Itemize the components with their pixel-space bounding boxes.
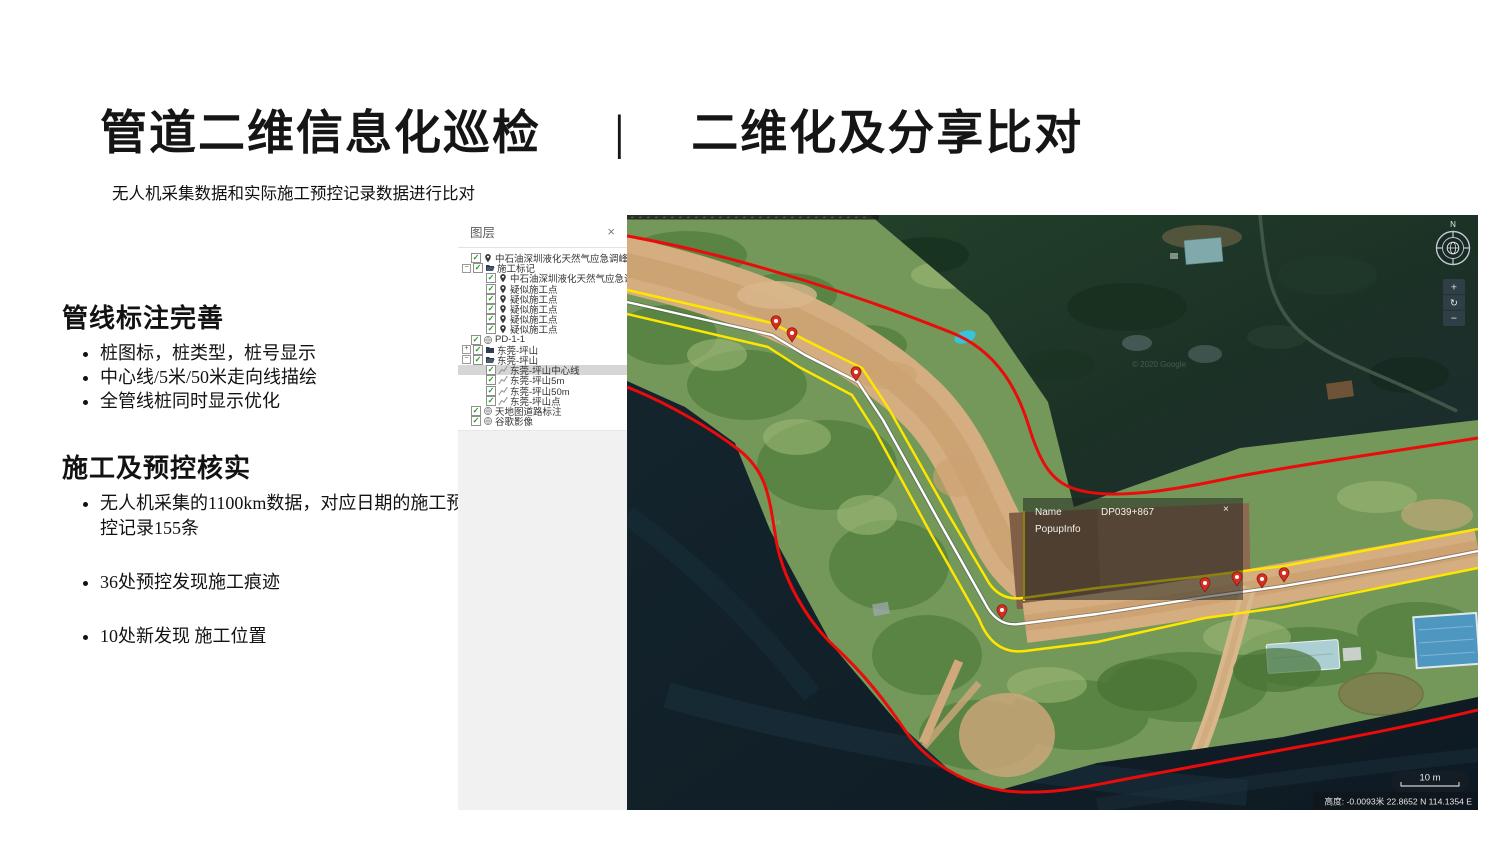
title-left: 管道二维信息化巡检 xyxy=(100,106,541,159)
layer-label: 疑似施工点 xyxy=(510,304,558,314)
map-viewport[interactable]: © 2020 Google xyxy=(627,215,1478,810)
bullet-list: 桩图标，桩类型，桩号显示中心线/5米/50米走向线描绘全管线桩同时显示优化 xyxy=(62,341,482,413)
pin-icon xyxy=(498,273,508,283)
layer-row[interactable]: ✓东莞-坪山点 xyxy=(458,396,627,406)
globe-icon xyxy=(483,335,493,345)
layer-label: 疑似施工点 xyxy=(510,314,558,324)
pond xyxy=(1339,673,1423,715)
checkbox-icon[interactable]: ✓ xyxy=(473,355,483,365)
map-canvas: © 2020 Google xyxy=(627,215,1478,810)
layer-label: 中石油深圳液化天然气应急调峰... xyxy=(510,273,627,283)
checkbox-icon[interactable]: ✓ xyxy=(486,324,496,334)
layer-label: 东莞-坪山50m xyxy=(510,385,570,395)
map-watermark: © 2020 Google xyxy=(1132,360,1186,369)
title-separator: | xyxy=(615,105,626,160)
bullet-item: 全管线桩同时显示优化 xyxy=(100,389,482,413)
checkbox-icon[interactable]: ✓ xyxy=(471,406,481,416)
layer-row[interactable]: +✓东莞-坪山 xyxy=(458,345,627,355)
bullet-item: 10处新发现 施工位置 xyxy=(100,624,466,649)
clipped-top-strip xyxy=(627,215,879,220)
folder-open-icon xyxy=(485,355,495,365)
layer-row[interactable]: ✓疑似施工点 xyxy=(458,324,627,334)
layer-row[interactable]: ✓东莞-坪山中心线 xyxy=(458,365,627,375)
popup-name-value: DP039+867 xyxy=(1101,507,1155,518)
layers-panel: 图层 × ✓中石油深圳液化天然气应急调峰站...−✓施工标记✓中石油深圳液化天然… xyxy=(458,215,627,810)
bullet-item: 无人机采集的1100km数据，对应日期的施工预控记录155条 xyxy=(100,491,466,541)
layer-row[interactable]: −✓东莞-坪山 xyxy=(458,355,627,365)
layer-row[interactable]: ✓疑似施工点 xyxy=(458,294,627,304)
bullet-item: 36处预控发现施工痕迹 xyxy=(100,570,466,595)
section-construction-check: 施工及预控核实 无人机采集的1100km数据，对应日期的施工预控记录155条36… xyxy=(62,448,466,678)
polyline-icon xyxy=(498,375,508,385)
checkbox-icon[interactable]: ✓ xyxy=(471,335,481,345)
pin-icon xyxy=(498,284,508,294)
collapse-toggle-icon[interactable]: − xyxy=(462,355,471,364)
polyline-icon xyxy=(498,365,508,375)
layer-label: 谷歌影像 xyxy=(495,416,533,426)
layer-row[interactable]: ✓疑似施工点 xyxy=(458,314,627,324)
section-pipeline-annotation: 管线标注完善 桩图标，桩类型，桩号显示中心线/5米/50米走向线描绘全管线桩同时… xyxy=(62,298,482,413)
bullet-item: 桩图标，桩类型，桩号显示 xyxy=(100,341,482,365)
layer-label: 疑似施工点 xyxy=(510,294,558,304)
layer-row[interactable]: ✓疑似施工点 xyxy=(458,284,627,294)
checkbox-icon[interactable]: ✓ xyxy=(486,365,496,375)
layer-row[interactable]: ✓东莞-坪山5m xyxy=(458,375,627,385)
layer-label: 施工标记 xyxy=(497,263,535,273)
checkbox-icon[interactable]: ✓ xyxy=(486,386,496,396)
layer-row[interactable]: ✓PD-1-1 xyxy=(458,335,627,345)
layer-label: 中石油深圳液化天然气应急调峰站... xyxy=(495,253,627,263)
scale-bar: 10 m xyxy=(1391,771,1469,792)
layers-panel-footer xyxy=(458,430,627,810)
layer-row[interactable]: ✓天地图道路标注 xyxy=(458,406,627,416)
map-popup: Name DP039+867 PopupInfo × xyxy=(1023,498,1243,600)
layer-label: 疑似施工点 xyxy=(510,324,558,334)
layer-label: 疑似施工点 xyxy=(510,284,558,294)
layer-tree: ✓中石油深圳液化天然气应急调峰站...−✓施工标记✓中石油深圳液化天然气应急调峰… xyxy=(458,248,627,430)
checkbox-icon[interactable]: ✓ xyxy=(486,284,496,294)
layer-label: 东莞-坪山 xyxy=(497,345,538,355)
folder-open-icon xyxy=(485,263,495,273)
layer-label: 东莞-坪山 xyxy=(497,355,538,365)
close-icon[interactable]: × xyxy=(607,224,615,239)
folder-icon xyxy=(485,345,495,355)
bullet-list: 无人机采集的1100km数据，对应日期的施工预控记录155条36处预控发现施工痕… xyxy=(62,491,466,649)
building-roof xyxy=(1184,237,1223,264)
checkbox-icon[interactable]: ✓ xyxy=(486,375,496,385)
layer-label: 东莞-坪山点 xyxy=(510,396,561,406)
slide-subtitle: 无人机采集数据和实际施工预控记录数据进行比对 xyxy=(112,180,475,204)
pin-icon xyxy=(498,314,508,324)
popup-close-icon[interactable]: × xyxy=(1223,504,1229,515)
layer-label: 天地图道路标注 xyxy=(495,406,562,416)
scale-bar-label: 10 m xyxy=(1419,773,1440,784)
layer-row[interactable]: ✓中石油深圳液化天然气应急调峰站... xyxy=(458,253,627,263)
compass-north-label: N xyxy=(1450,220,1456,229)
zoom-in-button[interactable]: + xyxy=(1451,282,1457,294)
checkbox-icon[interactable]: ✓ xyxy=(486,304,496,314)
checkbox-icon[interactable]: ✓ xyxy=(473,263,483,273)
section-heading: 管线标注完善 xyxy=(62,298,482,335)
reset-view-button[interactable]: ↻ xyxy=(1450,298,1458,309)
pin-icon xyxy=(498,324,508,334)
coordinates-readout: 高度: -0.0093米 22.8652 N 114.1354 E xyxy=(1325,796,1473,807)
layer-row[interactable]: ✓东莞-坪山50m xyxy=(458,385,627,395)
layers-panel-title: 图层 xyxy=(470,222,495,241)
layer-label: 东莞-坪山中心线 xyxy=(510,365,580,375)
layer-label: 东莞-坪山5m xyxy=(510,375,564,385)
pin-icon xyxy=(498,304,508,314)
layer-label: PD-1-1 xyxy=(495,335,525,345)
layers-panel-header: 图层 × xyxy=(458,215,627,248)
swimming-pool xyxy=(1413,613,1478,668)
section-heading: 施工及预控核实 xyxy=(62,448,466,485)
checkbox-icon[interactable]: ✓ xyxy=(486,294,496,304)
pin-icon xyxy=(483,253,493,263)
layer-row[interactable]: −✓施工标记 xyxy=(458,263,627,273)
pin-icon xyxy=(498,294,508,304)
zoom-control-stack: + ↻ − xyxy=(1443,279,1465,326)
checkbox-icon[interactable]: ✓ xyxy=(471,416,481,426)
layer-row[interactable]: ✓疑似施工点 xyxy=(458,304,627,314)
expand-toggle-icon[interactable]: + xyxy=(462,345,471,354)
checkbox-icon[interactable]: ✓ xyxy=(486,273,496,283)
status-bar: 高度: -0.0093米 22.8652 N 114.1354 E xyxy=(1313,792,1478,810)
polyline-icon xyxy=(498,396,508,406)
gis-app-window: 图层 × ✓中石油深圳液化天然气应急调峰站...−✓施工标记✓中石油深圳液化天然… xyxy=(458,215,1478,810)
title-right: 二维化及分享比对 xyxy=(691,106,1083,159)
checkbox-icon[interactable]: ✓ xyxy=(486,396,496,406)
checkbox-icon[interactable]: ✓ xyxy=(471,253,481,263)
globe-icon xyxy=(483,416,493,426)
collapse-toggle-icon[interactable]: − xyxy=(462,264,471,273)
checkbox-icon[interactable]: ✓ xyxy=(473,345,483,355)
bullet-item: 中心线/5米/50米走向线描绘 xyxy=(100,365,482,389)
page-title: 管道二维信息化巡检|二维化及分享比对 xyxy=(100,94,1083,163)
globe-icon xyxy=(483,406,493,416)
popup-info-label: PopupInfo xyxy=(1035,524,1081,535)
polyline-icon xyxy=(498,386,508,396)
zoom-out-button[interactable]: − xyxy=(1451,313,1457,325)
checkbox-icon[interactable]: ✓ xyxy=(486,314,496,324)
layer-row[interactable]: ✓谷歌影像 xyxy=(458,416,627,426)
globe-icon xyxy=(1447,242,1459,254)
popup-name-label: Name xyxy=(1035,507,1062,518)
layer-row[interactable]: ✓中石油深圳液化天然气应急调峰... xyxy=(458,273,627,283)
